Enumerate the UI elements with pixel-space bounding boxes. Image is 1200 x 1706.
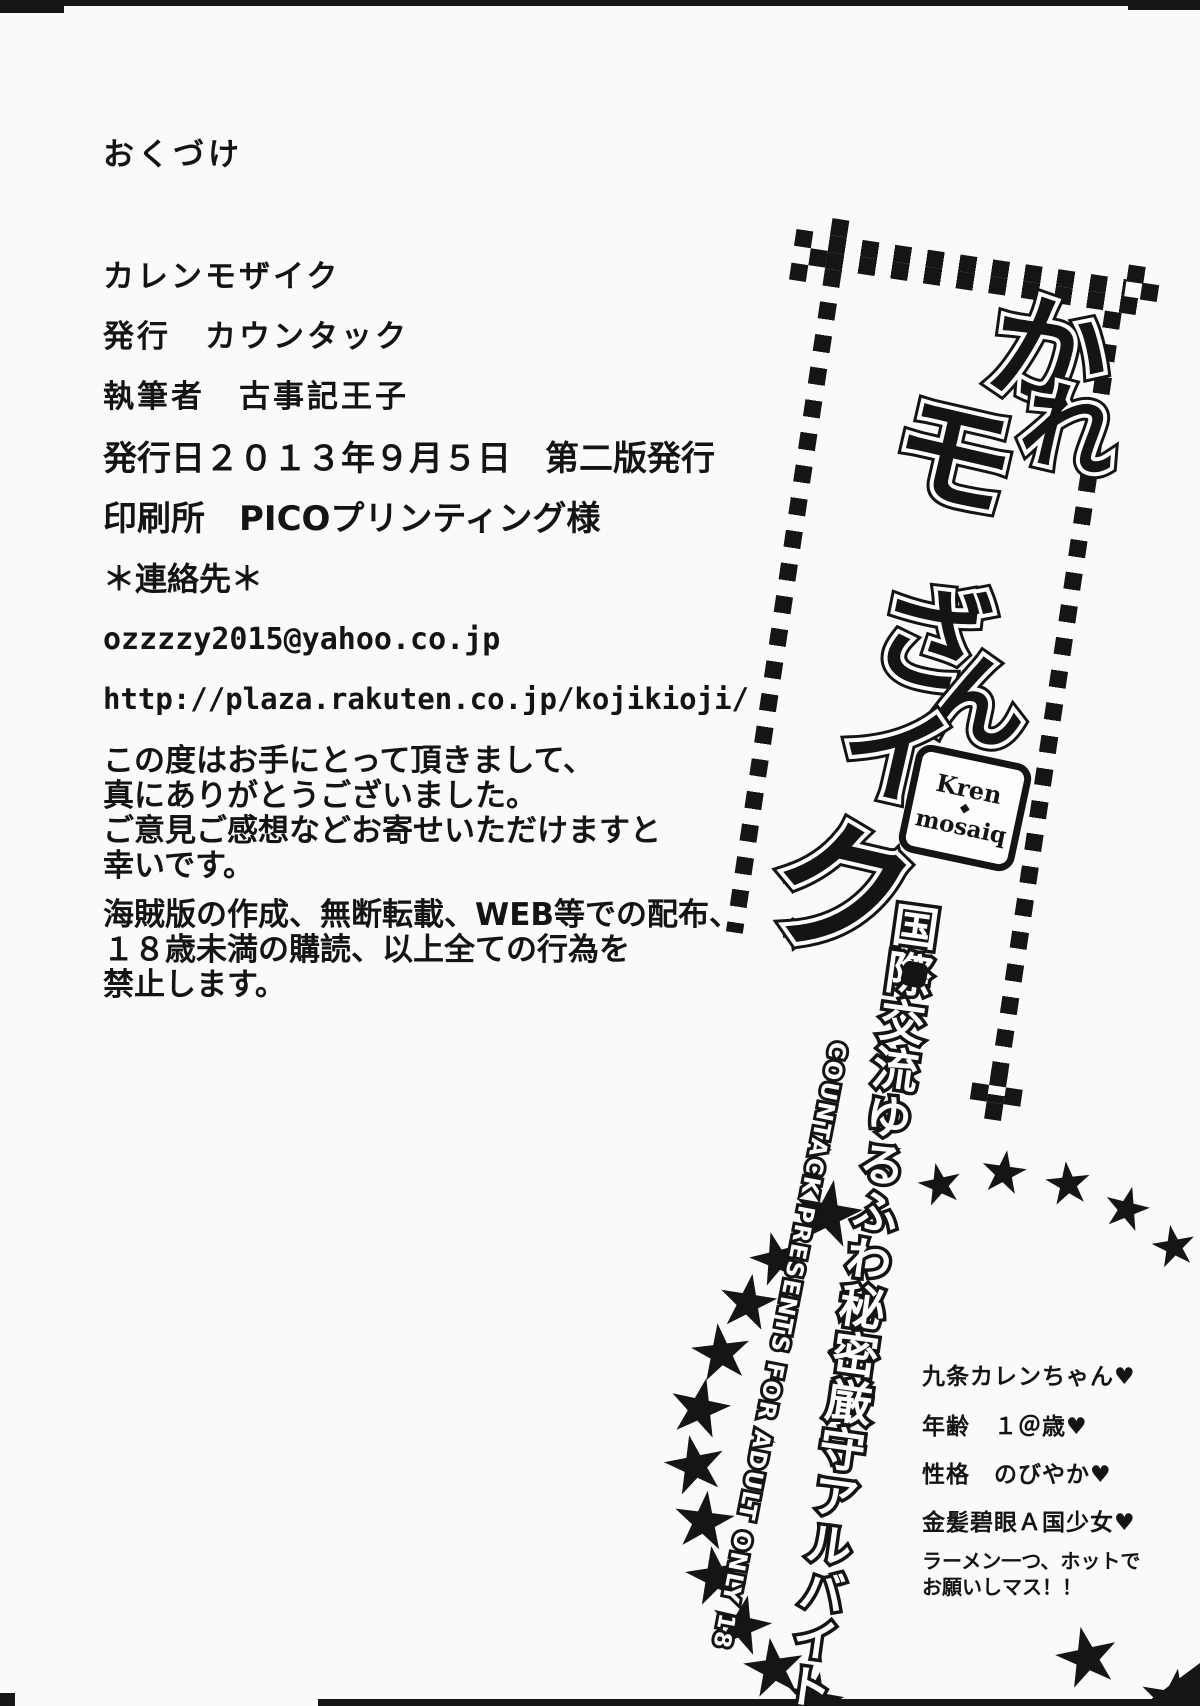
colophon-author: 執筆者 古事記王子	[103, 380, 409, 414]
checker-dot	[984, 1102, 1003, 1121]
scan-edge-bottom-left	[0, 1693, 15, 1706]
colophon-title: カレンモザイク	[103, 260, 340, 294]
colophon-email: ozzzzy2015@yahoo.co.jp	[103, 623, 500, 656]
logo-glyph-re: れれれ	[1012, 373, 1127, 488]
colophon-url: http://plaza.rakuten.co.jp/kojikioji/	[103, 684, 749, 716]
checker-dot	[1126, 265, 1145, 284]
scan-edge-top-right	[1128, 0, 1200, 10]
checker-dot	[789, 263, 808, 282]
star-icon: ★	[1039, 1151, 1097, 1214]
profile-trait: 金髪碧眼Ａ国少女♥	[922, 1503, 1136, 1537]
star-icon: ★	[910, 1152, 971, 1217]
thanks-line: ご意見ご感想などお寄せいただけますと	[103, 814, 661, 849]
profile-request: ラーメン一つ、ホットで お願いしマス！！	[922, 1548, 1140, 1600]
colophon-contact-label: ＊連絡先＊	[103, 562, 263, 597]
profile-age: 年齢 １＠歳♥	[922, 1407, 1088, 1441]
colophon-printer: 印刷所 PICOプリンティング様	[103, 501, 600, 538]
colophon-publish-date: 発行日２０１３年９月５日 第二版発行	[103, 441, 715, 478]
checker-dot	[970, 1082, 989, 1101]
profile-request-line: お願いしマス！！	[922, 1574, 1140, 1600]
scan-edge-top	[0, 0, 1200, 6]
thanks-line: 真にありがとうございました。	[103, 779, 661, 814]
star-icon: ★	[1044, 1610, 1131, 1703]
star-icon: ★	[974, 1140, 1034, 1205]
thanks-paragraph: この度はお手にとって頂きまして、 真にありがとうございました。 ご意見ご感想など…	[103, 744, 661, 884]
piracy-notice-paragraph: 海賊版の作成、無断転載、WEB等での配布、 １８歳未満の購読、以上全ての行為を …	[103, 898, 740, 1003]
notice-line: 海賊版の作成、無断転載、WEB等での配布、	[103, 898, 740, 933]
checker-dot	[794, 229, 813, 248]
checker-dot	[1003, 1087, 1022, 1106]
star-icon: ★	[1129, 1653, 1200, 1706]
thanks-line: 幸いです。	[103, 849, 661, 884]
notice-line: 禁止します。	[103, 968, 740, 1003]
scan-edge-top-left	[0, 0, 64, 13]
checker-dot	[808, 248, 827, 267]
notice-line: １８歳未満の購読、以上全ての行為を	[103, 933, 740, 968]
profile-personality: 性格 のびやか♥	[922, 1455, 1112, 1489]
star-icon: ★	[1144, 1215, 1200, 1279]
thanks-line: この度はお手にとって頂きまして、	[103, 744, 661, 779]
colophon-publisher: 発行 カウンタック	[103, 320, 409, 354]
page-title: おくづけ	[103, 138, 243, 172]
checker-dot	[989, 1068, 1008, 1087]
doujin-colophon-page: おくづけ カレンモザイク 発行 カウンタック 執筆者 古事記王子 発行日２０１３…	[0, 0, 1200, 1706]
profile-request-line: ラーメン一つ、ホットで	[922, 1548, 1140, 1574]
checker-dot	[1140, 283, 1159, 302]
checker-dot	[830, 218, 849, 237]
profile-name: 九条カレンちゃん♥	[922, 1357, 1136, 1391]
